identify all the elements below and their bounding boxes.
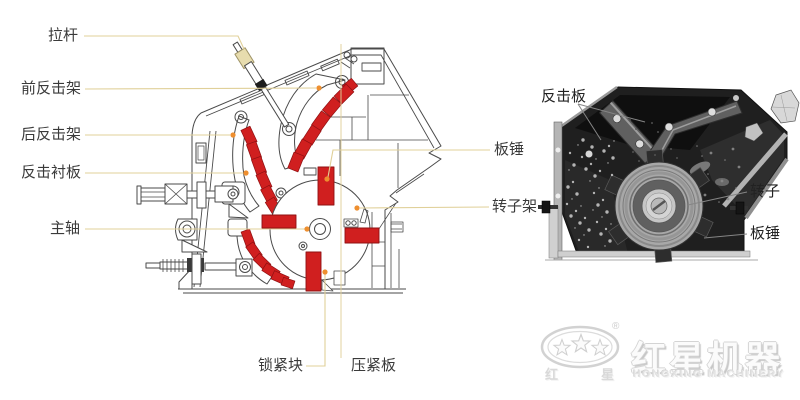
locking-block-label: 锁紧块 xyxy=(258,358,303,374)
blow-bar-label-right: 板锤 xyxy=(750,226,780,242)
impact-liner-label: 反击衬板 xyxy=(21,165,81,181)
logo-stars xyxy=(554,335,608,355)
front-impact-frame-label: 前反击架 xyxy=(21,81,81,97)
rotor-frame-label: 转子架 xyxy=(492,199,537,215)
rear-impact-frame-label: 后反击架 xyxy=(21,127,81,143)
crusher-section-drawing xyxy=(137,40,441,293)
rotor-label: 转子 xyxy=(750,184,780,200)
brand-name-english: HONGXING MACHINERY xyxy=(633,368,785,380)
blow-bar-label-left: 板锤 xyxy=(494,142,524,158)
hongxing-logo-emblem xyxy=(542,327,618,367)
main-shaft-label: 主轴 xyxy=(50,221,80,237)
logo-char-xing: 星 xyxy=(601,364,614,383)
logo-char-hong: 红 xyxy=(545,364,558,383)
tie-rod-label: 拉杆 xyxy=(48,28,78,44)
photo-rotor xyxy=(615,162,703,250)
page: 拉杆 前反击架 后反击架 反击衬板 主轴 板锤 转子架 锁紧块 压紧板 反击板 … xyxy=(0,0,800,400)
pressing-plate-label: 压紧板 xyxy=(351,358,396,374)
impact-plate-label: 反击板 xyxy=(541,89,586,105)
registered-mark: ® xyxy=(612,321,619,332)
